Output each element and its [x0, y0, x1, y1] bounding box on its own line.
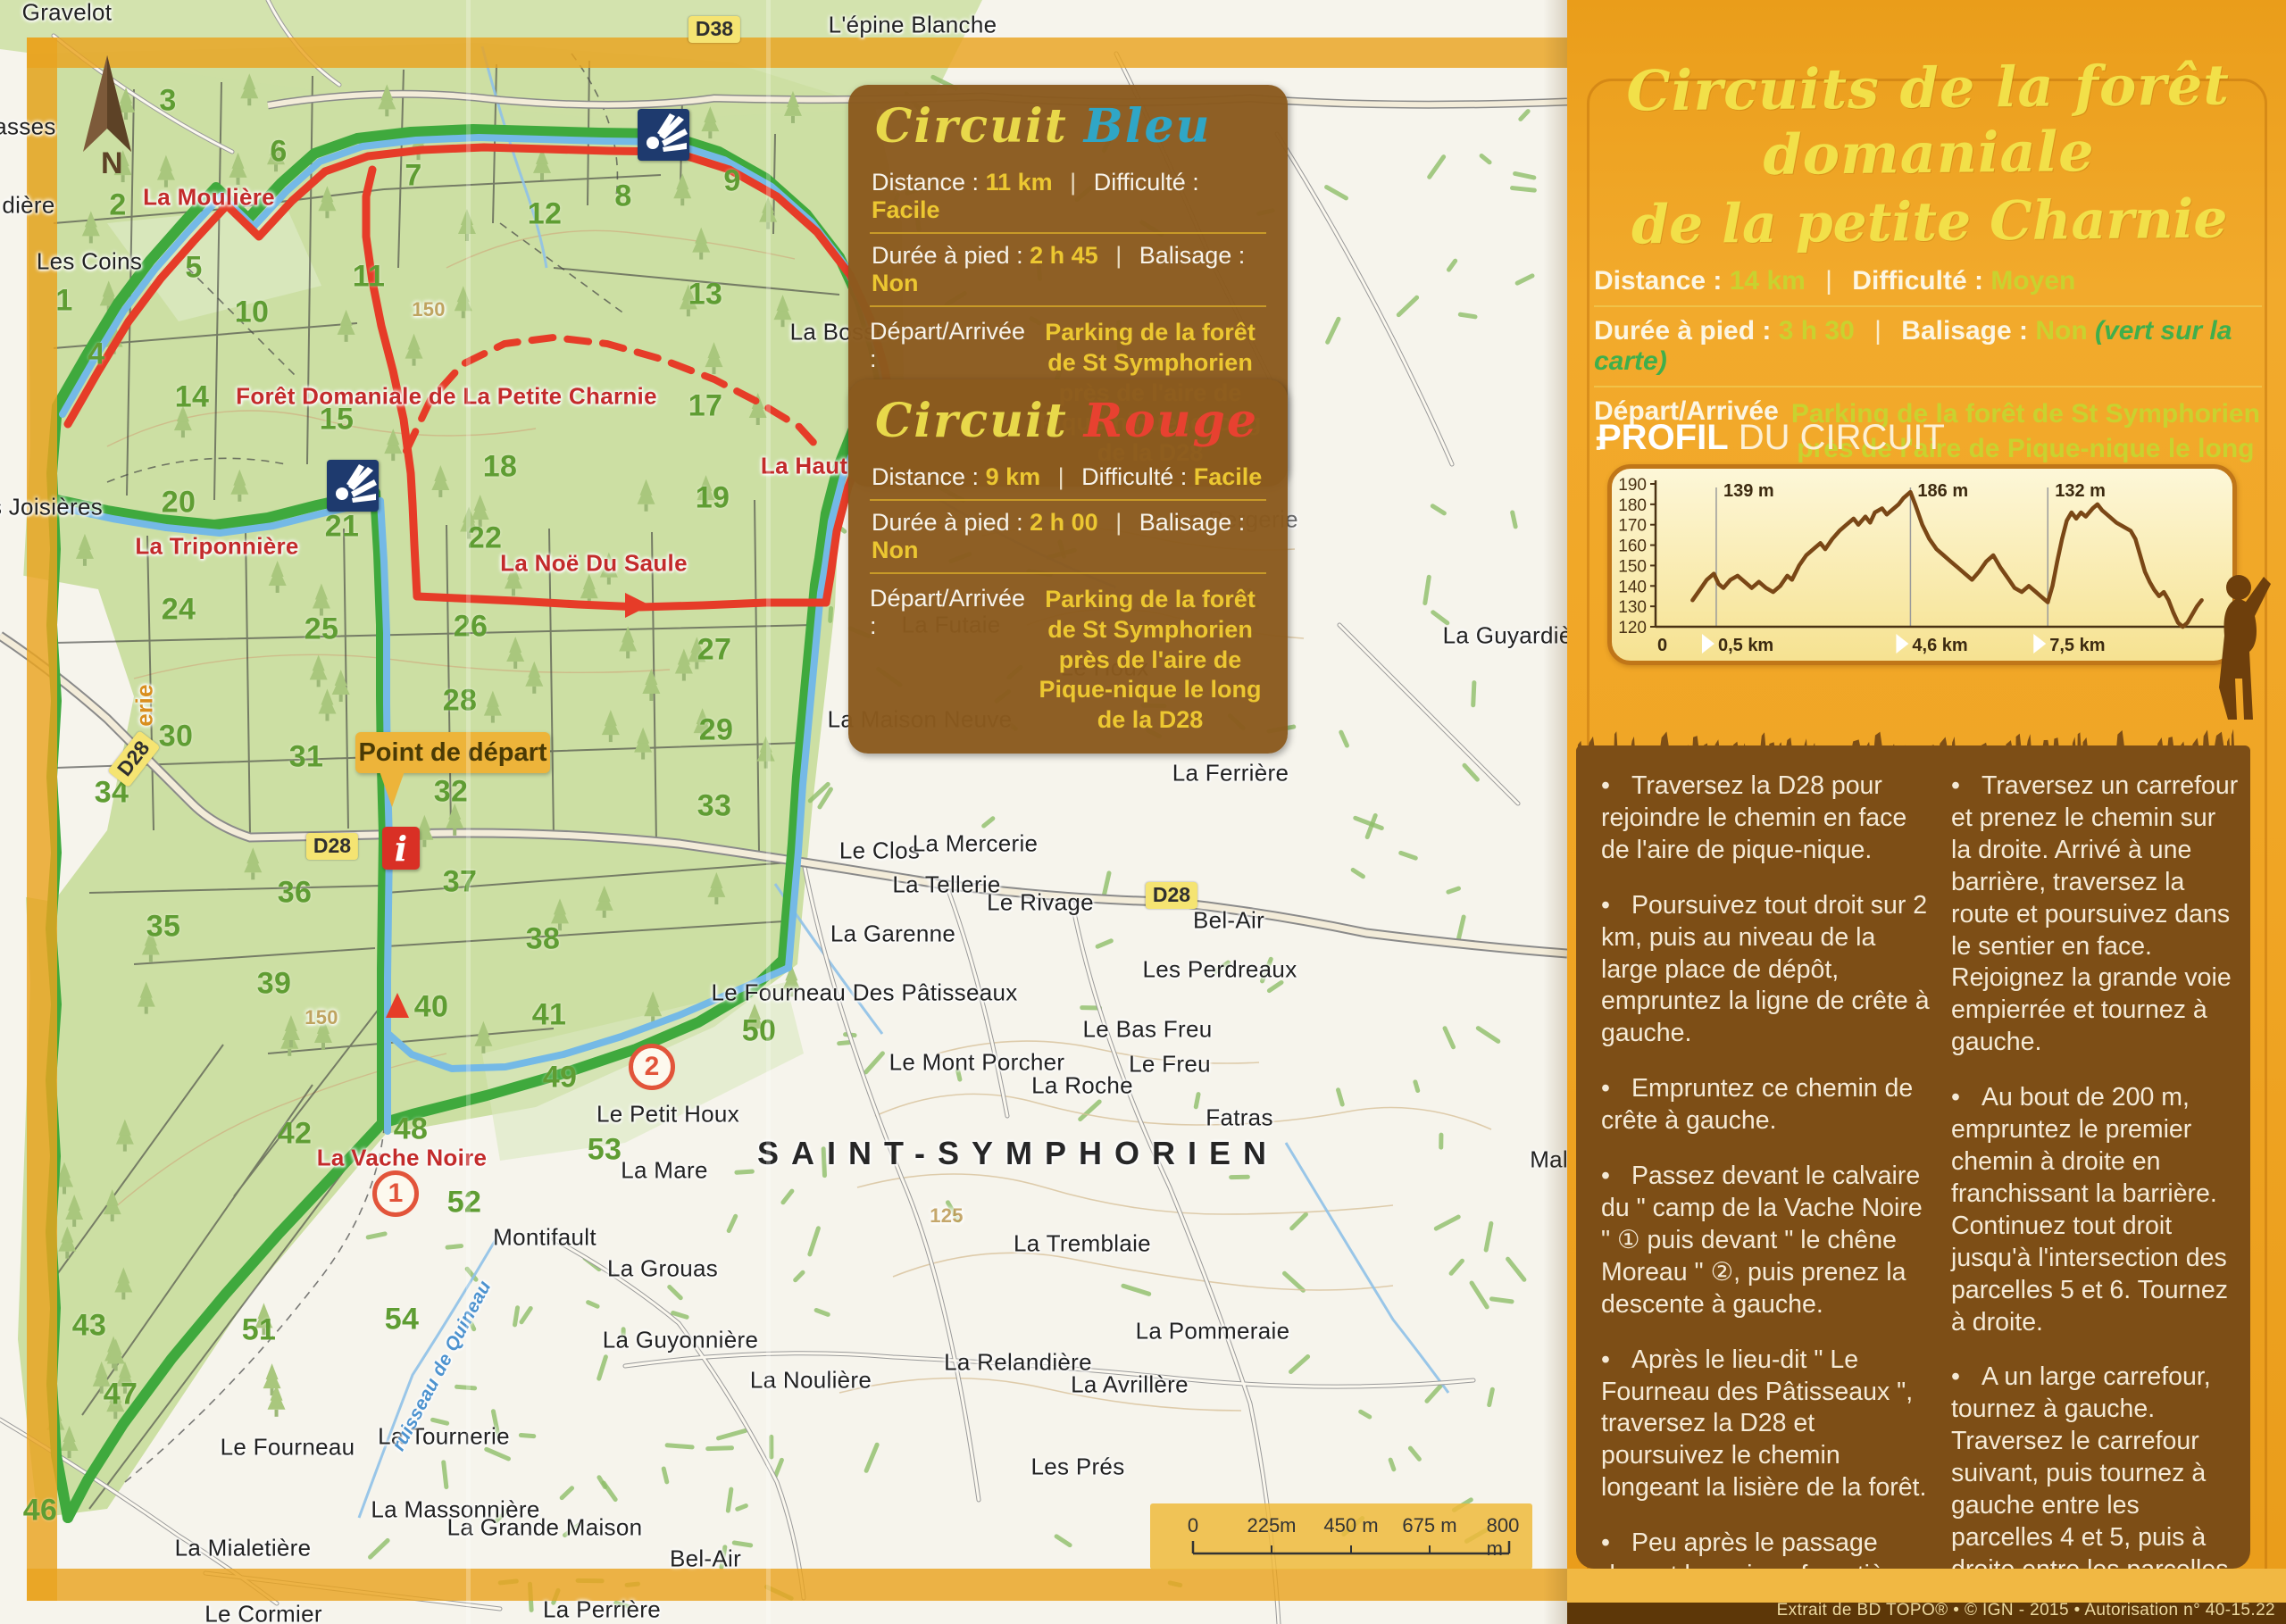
- hedgerow-mark: [708, 1448, 732, 1449]
- gr-waymark-icon: [327, 460, 379, 512]
- svg-text:186 m: 186 m: [1917, 481, 1968, 501]
- svg-text:170: 170: [1618, 517, 1647, 536]
- bullet-icon: •: [1601, 1528, 1631, 1560]
- place-label: Le Cormier: [204, 1601, 322, 1624]
- hedgerow-mark: [1056, 1537, 1070, 1545]
- red-place-label: La Triponnière: [135, 533, 298, 561]
- circuit-rouge-distance-row: Distance : 9 km | Difficulté : Facile: [870, 457, 1266, 497]
- red-place-label: La Moulière: [143, 184, 275, 212]
- parcel-number: 54: [385, 1303, 419, 1337]
- place-label: La Roche: [1031, 1072, 1133, 1100]
- parcel-number: 28: [443, 684, 477, 719]
- hedgerow-mark: [1285, 1273, 1304, 1290]
- scale-bar: 0 225m 450 m 675 m 800 m: [1150, 1503, 1532, 1570]
- place-label: La Mare: [621, 1157, 707, 1185]
- hedgerow-mark: [1398, 297, 1416, 314]
- parcel-number: 24: [162, 593, 196, 628]
- hedgerow-mark: [1448, 888, 1459, 892]
- hedgerow-mark: [1432, 506, 1444, 513]
- place-label: Le Fourneau Des Pâtisseaux: [711, 979, 1017, 1007]
- separator: |: [1105, 242, 1132, 269]
- hedgerow-mark: [1415, 1082, 1418, 1091]
- duration-label: Durée à pied :: [872, 242, 1023, 269]
- place-label: La Tellerie: [892, 871, 1000, 899]
- parcel-number: 52: [447, 1186, 481, 1220]
- distance-value: 14 km: [1730, 266, 1806, 296]
- place-label: Le Petit Houx: [597, 1101, 739, 1128]
- separator: |: [1047, 463, 1075, 490]
- instruction-item: •Traversez la D28 pour rejoindre le chem…: [1601, 770, 1933, 867]
- stats-distance-row: Distance : 14 km | Difficulté : Moyen: [1594, 257, 2262, 305]
- hedgerow-mark: [588, 1303, 597, 1307]
- difficulty-value: Facile: [872, 196, 940, 223]
- gr-waymark-icon: [638, 109, 689, 161]
- brochure-page: N GravelotL'épine BlancheassesdièreLes C…: [0, 0, 2286, 1624]
- difficulty-value: Facile: [1194, 463, 1263, 490]
- parcel-number: 31: [289, 740, 323, 775]
- parcel-number: 20: [162, 486, 196, 521]
- balisage-label: Balisage :: [1901, 316, 2028, 346]
- topo-map: N GravelotL'épine BlancheassesdièreLes C…: [0, 0, 1567, 1624]
- hedgerow-mark: [1472, 1283, 1487, 1307]
- distance-label: Distance :: [872, 169, 979, 196]
- parcel-number: 42: [278, 1117, 312, 1152]
- hedgerow-mark: [1361, 1412, 1370, 1417]
- hedgerow-mark: [1521, 112, 1528, 120]
- hedgerow-mark: [738, 1506, 747, 1510]
- parcel-number: 25: [305, 612, 338, 647]
- poi-circled-number: 2: [629, 1044, 675, 1090]
- bullet-icon: •: [1951, 770, 1981, 803]
- fold-edge-label: erie: [131, 684, 159, 726]
- start-point-pointer: [380, 771, 405, 807]
- scale-tick-label: 0: [1188, 1514, 1198, 1537]
- scale-tick-label: 675 m: [1402, 1514, 1456, 1537]
- place-label: Le Freu: [1129, 1051, 1211, 1079]
- hedgerow-mark: [1291, 1356, 1308, 1371]
- circuit-rouge-box: CircuitRouge Distance : 9 km | Difficult…: [848, 379, 1288, 754]
- place-label: Le Fourneau: [221, 1434, 355, 1462]
- hedgerow-mark: [1513, 188, 1535, 191]
- parcel-number: 39: [257, 967, 291, 1002]
- svg-text:160: 160: [1618, 537, 1647, 556]
- hedgerow-mark: [1196, 1095, 1198, 1107]
- parcel-number: 53: [588, 1133, 622, 1168]
- hedgerow-mark: [371, 1540, 388, 1557]
- divider: [870, 572, 1266, 574]
- road-label-chip: D28: [306, 833, 358, 860]
- svg-text:140: 140: [1618, 578, 1647, 596]
- hedgerow-mark: [1097, 941, 1111, 946]
- hedgerow-mark: [1327, 187, 1347, 198]
- parcel-number: 1: [55, 284, 72, 319]
- place-label: Le Clos: [839, 837, 920, 865]
- duration-value: 2 h 00: [1030, 509, 1098, 536]
- parcel-number: 32: [434, 775, 468, 810]
- parcel-number: 12: [528, 197, 562, 232]
- hedgerow-mark: [1341, 732, 1347, 745]
- divider: [870, 232, 1266, 234]
- red-place-label: La Haute: [761, 453, 861, 480]
- parcel-number: 11: [353, 260, 386, 295]
- place-label: Montifault: [493, 1224, 597, 1252]
- parcel-number: 15: [320, 403, 354, 437]
- poi-circled-number: 1: [372, 1170, 419, 1217]
- road-label-chip: D28: [1146, 882, 1197, 909]
- separator: |: [1862, 316, 1894, 346]
- distance-value: 9 km: [986, 463, 1041, 490]
- parcel-number: 9: [723, 164, 740, 199]
- duration-value: 2 h 45: [1030, 242, 1098, 269]
- hedgerow-mark: [1269, 982, 1281, 990]
- parcel-number: 22: [468, 521, 502, 556]
- panel-title-line1: Circuits de la forêt domaniale: [1584, 52, 2273, 189]
- parcel-number: 48: [394, 1112, 428, 1147]
- red-place-label: La Noë Du Saule: [500, 550, 688, 578]
- bullet-icon: •: [1951, 1082, 1981, 1114]
- place-label: La Grouas: [607, 1255, 718, 1283]
- circuit-bleu-duration-row: Durée à pied : 2 h 45 | Balisage : Non: [870, 236, 1266, 304]
- place-label: Gravelot: [22, 0, 113, 27]
- panel-title: Circuits de la forêt domaniale de la pet…: [1584, 52, 2273, 257]
- instruction-item: •Traversez un carrefour et prenez le che…: [1951, 770, 2239, 1059]
- parcel-number: 41: [532, 998, 566, 1033]
- hedgerow-mark: [599, 1478, 605, 1487]
- parcel-number: 26: [454, 610, 488, 645]
- hedgerow-mark: [1445, 1029, 1454, 1047]
- place-label: La Mercerie: [913, 830, 1039, 858]
- distance-label: Distance :: [872, 463, 979, 490]
- difficulty-label: Difficulté :: [1094, 169, 1199, 196]
- hedgerow-mark: [444, 1462, 446, 1487]
- place-label: Bel-Air: [1193, 907, 1264, 935]
- distance-label: Distance :: [1594, 266, 1722, 296]
- parcel-number: 18: [483, 450, 517, 485]
- circuit-title-prefix: Circuit: [875, 394, 1068, 448]
- bullet-icon: •: [1601, 770, 1631, 803]
- elevation-label: 150: [305, 1006, 338, 1029]
- circuit-title-name: Bleu: [1084, 99, 1212, 154]
- instruction-item: •Après le lieu-dit " Le Fourneau des Pât…: [1601, 1345, 1933, 1505]
- circuit-rouge-duration-row: Durée à pied : 2 h 00 | Balisage : Non: [870, 503, 1266, 570]
- hedgerow-mark: [1460, 314, 1475, 317]
- north-arrow-icon: N: [67, 52, 147, 177]
- parcel-number: 38: [526, 922, 560, 957]
- hedgerow-mark: [1464, 765, 1477, 779]
- hedgerow-mark: [1401, 853, 1416, 858]
- hedgerow-mark: [515, 1308, 518, 1325]
- hedgerow-mark: [1356, 818, 1382, 828]
- svg-text:139 m: 139 m: [1723, 481, 1774, 501]
- parcel-number: 49: [543, 1061, 577, 1095]
- hedgerow-mark: [521, 1436, 533, 1437]
- parcel-number: 3: [159, 84, 176, 119]
- svg-text:180: 180: [1618, 496, 1647, 515]
- hedgerow-mark: [1489, 1389, 1493, 1404]
- hedgerow-mark: [1436, 1217, 1458, 1228]
- parcel-number: 10: [235, 296, 269, 330]
- profil-heading-bold: PROFIL: [1598, 418, 1729, 457]
- place-label: s Joisières: [0, 494, 103, 521]
- place-label: Fatras: [1206, 1104, 1272, 1132]
- depart-value: Parking de la forêt de St Symphorien prè…: [1034, 585, 1266, 736]
- duration-value: 3 h 30: [1779, 316, 1855, 346]
- place-label: La Pommeraie: [1136, 1318, 1290, 1345]
- instructions-right-column: •Traversez un carrefour et prenez le che…: [1951, 770, 2239, 1624]
- parcel-number: 36: [278, 876, 312, 911]
- hedgerow-mark: [1473, 683, 1474, 705]
- hedgerow-mark: [984, 819, 993, 826]
- commune-label: SAINT-SYMPHORIEN: [757, 1135, 1279, 1172]
- balisage-label: Balisage :: [1139, 242, 1246, 269]
- parcel-number: 33: [697, 789, 731, 824]
- elevation-profile-chart: 190180170160150140130120139 m0,5 km186 m…: [1607, 464, 2237, 665]
- scale-tick-label: 225m: [1247, 1514, 1296, 1537]
- start-point-callout: Point de départ: [355, 732, 550, 773]
- hedgerow-mark: [447, 1246, 462, 1248]
- hedgerow-mark: [1427, 1385, 1441, 1401]
- scale-tick-label: 800 m: [1487, 1514, 1520, 1561]
- place-label: Les Prés: [1030, 1453, 1124, 1481]
- duration-label: Durée à pied :: [1594, 316, 1771, 346]
- depart-label: Départ/Arrivée :: [870, 585, 1025, 736]
- place-label: La Ferrière: [1172, 760, 1289, 787]
- red-place-label: La Vache Noire: [317, 1145, 488, 1172]
- hedgerow-mark: [1517, 276, 1532, 283]
- hedgerow-mark: [1513, 512, 1515, 527]
- bullet-icon: •: [1601, 890, 1631, 922]
- hedgerow-mark: [1430, 157, 1444, 178]
- hedgerow-mark: [775, 1460, 781, 1476]
- place-label: asses: [0, 113, 56, 141]
- hedgerow-mark: [1123, 1286, 1149, 1294]
- hedgerow-mark: [810, 1228, 819, 1254]
- place-label: La Perrière: [543, 1596, 661, 1624]
- place-label: Le Bas Freu: [1083, 1016, 1213, 1044]
- parcel-number: 19: [696, 481, 730, 516]
- profil-heading: PROFIL DU CIRCUIT: [1598, 418, 1945, 458]
- parcel-number: 7: [405, 159, 421, 194]
- hedgerow-mark: [729, 1216, 735, 1230]
- parcel-number: 6: [270, 135, 287, 170]
- info-icon: i: [382, 827, 420, 870]
- circuit-panel: Circuits de la forêt domaniale de la pet…: [1567, 0, 2286, 1624]
- svg-text:7,5 km: 7,5 km: [2049, 636, 2105, 655]
- circuit-bleu-title: CircuitBleu: [875, 99, 1266, 154]
- attribution-text: Extrait de BD TOPO® • © IGN - 2015 • Aut…: [1777, 1601, 2275, 1620]
- separator: |: [1813, 266, 1845, 296]
- place-label: Bel-Air: [670, 1545, 741, 1573]
- svg-text:0,5 km: 0,5 km: [1718, 636, 1773, 655]
- place-label: Les Perdreaux: [1142, 956, 1297, 984]
- parcel-number: 4: [88, 337, 104, 372]
- stats-duration-row: Durée à pied : 3 h 30 | Balisage : Non (…: [1594, 307, 2262, 386]
- parcel-number: 2: [109, 188, 126, 223]
- instruction-item: •Empruntez ce chemin de crête à gauche.: [1601, 1073, 1933, 1137]
- place-label: La Mialetière: [175, 1535, 312, 1562]
- elevation-label: 125: [930, 1204, 964, 1228]
- hedgerow-mark: [816, 1311, 828, 1315]
- bullet-icon: •: [1951, 1362, 1981, 1394]
- hedgerow-mark: [1390, 1460, 1394, 1470]
- parcel-number: 21: [325, 510, 359, 545]
- hedgerow-mark: [737, 1171, 752, 1172]
- svg-text:N: N: [101, 146, 123, 177]
- parcel-number: 35: [146, 910, 180, 945]
- place-label: La Grande Maison: [447, 1514, 643, 1542]
- parcel-number: 50: [742, 1014, 776, 1049]
- svg-text:132 m: 132 m: [2055, 481, 2106, 501]
- hedgerow-mark: [1328, 319, 1339, 342]
- circuit-title-name: Rouge: [1084, 394, 1258, 448]
- distance-value: 11 km: [986, 169, 1053, 196]
- hedgerow-mark: [667, 1445, 692, 1447]
- hedgerow-mark: [830, 608, 831, 620]
- tree-icon: [268, 1385, 286, 1417]
- place-label: Les Coins: [37, 248, 142, 276]
- hiker-silhouette-icon: [2192, 554, 2282, 723]
- page-fold-shadow: [1543, 0, 1567, 1624]
- hedgerow-mark: [1339, 1090, 1343, 1104]
- parcel-number: 27: [697, 633, 731, 668]
- scale-tick-label: 450 m: [1323, 1514, 1378, 1537]
- hedgerow-mark: [1104, 873, 1109, 896]
- hedgerow-mark: [1292, 1214, 1306, 1228]
- fold-crease: [766, 0, 771, 1624]
- gold-band: [1567, 1569, 2286, 1603]
- svg-text:130: 130: [1618, 598, 1647, 617]
- hedgerow-mark: [1448, 261, 1455, 270]
- svg-text:120: 120: [1618, 619, 1647, 637]
- divider: [870, 305, 1266, 307]
- place-label: dière: [2, 192, 54, 220]
- hedgerow-mark: [1451, 1261, 1462, 1273]
- hedgerow-mark: [663, 1469, 667, 1482]
- elevation-label: 150: [412, 298, 446, 321]
- hedgerow-mark: [728, 1489, 730, 1511]
- hedgerow-mark: [1508, 1259, 1524, 1279]
- hedgerow-mark: [521, 1308, 530, 1321]
- red-place-label: Forêt Domaniale de La Petite Charnie: [236, 383, 657, 411]
- difficulty-label: Difficulté :: [1852, 266, 1983, 296]
- place-label: La Relandière: [944, 1349, 1092, 1377]
- difficulty-label: Difficulté :: [1081, 463, 1187, 490]
- hedgerow-mark: [599, 1357, 606, 1378]
- hedgerow-mark: [1486, 1223, 1491, 1250]
- hedgerow-mark: [562, 1488, 571, 1498]
- hedgerow-mark: [670, 1287, 680, 1297]
- bullet-icon: •: [1601, 1345, 1631, 1377]
- hedgerow-mark: [783, 1191, 792, 1203]
- circuit-rouge-depart-row: Départ/Arrivée : Parking de la forêt de …: [870, 576, 1266, 736]
- road-label-chip: D38: [688, 16, 740, 43]
- place-label: La Avrillère: [1071, 1371, 1189, 1399]
- place-label: Le Rivage: [987, 889, 1094, 917]
- instruction-item: •Passez devant le calvaire du " camp de …: [1601, 1161, 1933, 1321]
- parcel-number: 37: [443, 865, 477, 900]
- hedgerow-mark: [866, 1445, 877, 1470]
- balisage-label: Balisage :: [1139, 509, 1246, 536]
- parcel-number: 14: [175, 380, 209, 415]
- bullet-icon: •: [1601, 1161, 1631, 1193]
- instructions-panel: •Traversez la D28 pour rejoindre le chem…: [1576, 745, 2250, 1569]
- hedgerow-mark: [1478, 1029, 1498, 1042]
- hedgerow-mark: [368, 1234, 385, 1237]
- place-label: La Guyonnière: [603, 1327, 758, 1354]
- hedgerow-mark: [796, 1272, 803, 1280]
- svg-text:0: 0: [1657, 636, 1667, 655]
- parcel-number: 40: [414, 990, 448, 1025]
- panel-title-line2: de la petite Charnie: [1585, 187, 2273, 257]
- place-label: La Garenne: [830, 920, 955, 948]
- hedgerow-mark: [1491, 1299, 1512, 1302]
- circuit-bleu-distance-row: Distance : 11 km | Difficulté : Facile: [870, 162, 1266, 230]
- hedgerow-mark: [719, 1430, 746, 1437]
- instructions-left-column: •Traversez la D28 pour rejoindre le chem…: [1601, 770, 1933, 1624]
- parcel-number: 47: [104, 1378, 138, 1412]
- hedgerow-mark: [487, 1449, 509, 1459]
- parcel-number: 43: [72, 1309, 106, 1344]
- place-label: L'épine Blanche: [829, 12, 997, 39]
- circuit-rouge-title: CircuitRouge: [875, 394, 1266, 448]
- balisage-value: Non: [872, 537, 918, 563]
- instruction-item: •Au bout de 200 m, empruntez le premier …: [1951, 1082, 2239, 1338]
- parcel-number: 30: [159, 720, 193, 754]
- svg-text:4,6 km: 4,6 km: [1912, 636, 1967, 655]
- hedgerow-mark: [839, 1043, 849, 1044]
- parcel-number: 8: [614, 179, 631, 214]
- fold-crease: [466, 0, 471, 1624]
- svg-text:190: 190: [1618, 476, 1647, 495]
- balisage-value: Non: [2035, 316, 2087, 346]
- hedgerow-mark: [1410, 1448, 1419, 1459]
- balisage-value: Non: [872, 270, 918, 296]
- hedgerow-mark: [1515, 173, 1534, 177]
- parcel-number: 29: [699, 713, 733, 748]
- hedgerow-mark: [673, 1313, 687, 1318]
- separator: |: [1105, 509, 1132, 536]
- parcel-number: 13: [688, 278, 722, 312]
- parcel-number: 5: [185, 251, 202, 286]
- difficulty-value: Moyen: [1990, 266, 2075, 296]
- divider: [870, 499, 1266, 501]
- bullet-icon: •: [1601, 1073, 1631, 1105]
- instruction-item: •Poursuivez tout droit sur 2 km, puis au…: [1601, 890, 1933, 1051]
- place-label: La Tremblaie: [1014, 1230, 1151, 1258]
- duration-label: Durée à pied :: [872, 509, 1023, 536]
- separator: |: [1059, 169, 1087, 196]
- parcel-number: 46: [23, 1494, 57, 1528]
- hedgerow-mark: [1425, 577, 1429, 603]
- circuit-title-prefix: Circuit: [875, 99, 1068, 154]
- svg-text:150: 150: [1618, 557, 1647, 576]
- hedgerow-mark: [1353, 870, 1363, 876]
- hedgerow-mark: [1481, 156, 1489, 162]
- parcel-number: 17: [688, 389, 722, 424]
- hedgerow-mark: [866, 1054, 883, 1072]
- profil-heading-rest: DU CIRCUIT: [1729, 418, 1945, 457]
- parcel-number: 51: [242, 1313, 276, 1348]
